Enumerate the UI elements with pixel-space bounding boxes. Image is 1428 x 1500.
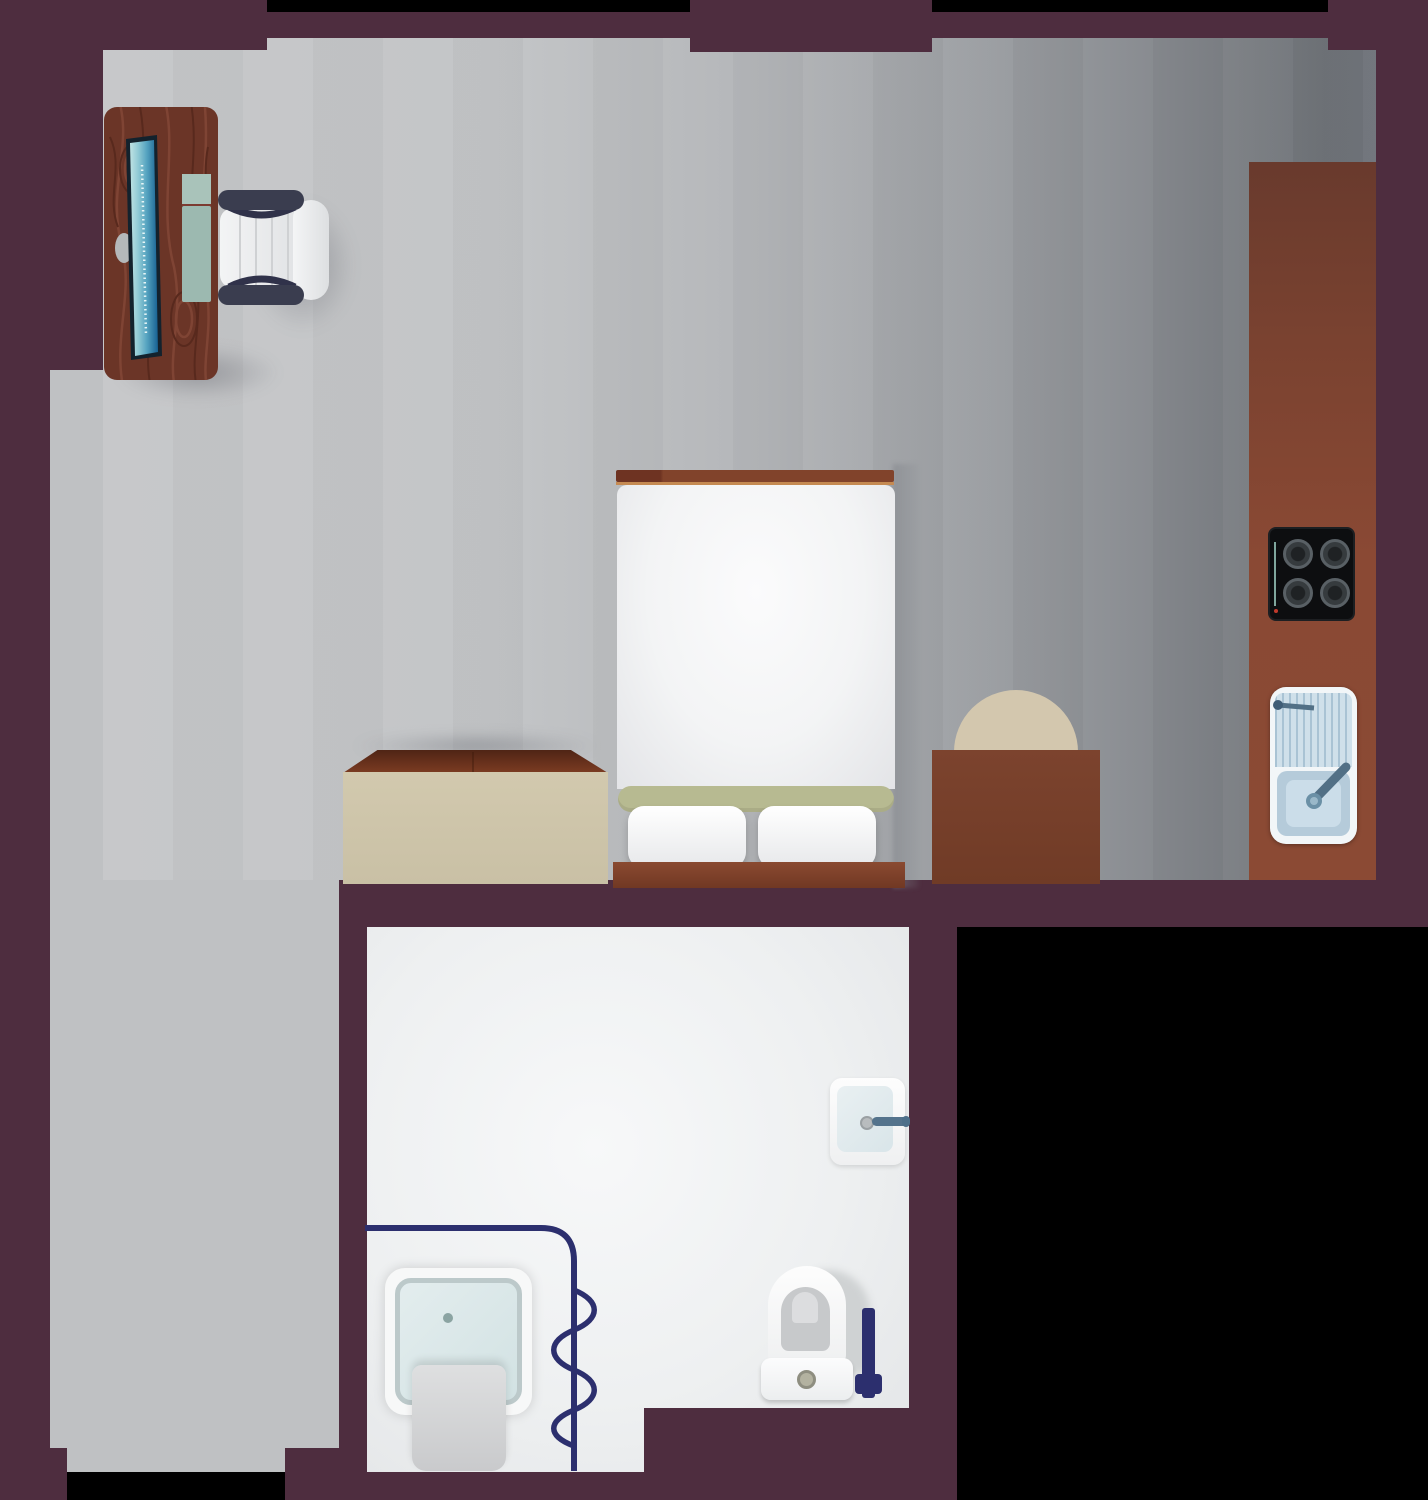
toilet-bowl-center — [792, 1292, 818, 1323]
floor-plan — [0, 0, 1428, 1500]
left-wall-upper — [0, 0, 103, 370]
flush-button-icon — [797, 1370, 816, 1389]
dresser-top — [343, 750, 608, 773]
kitchen-sink — [1270, 687, 1357, 844]
left-floor-extension — [50, 370, 103, 880]
bathroom-left-wall — [339, 880, 367, 1448]
burner-icon — [1283, 578, 1313, 608]
side-table — [932, 750, 1100, 884]
burner-icon — [1283, 539, 1313, 569]
dresser-front — [343, 772, 608, 884]
left-wall-lower — [0, 370, 50, 1448]
dresser-seam — [472, 752, 474, 772]
bed-shadow — [893, 464, 919, 888]
toilet — [768, 1266, 846, 1365]
pillow-right — [758, 806, 876, 868]
bath-mat — [412, 1365, 506, 1471]
pillow-left — [628, 806, 746, 868]
chair-armrest — [218, 285, 304, 305]
burner-icon — [1320, 578, 1350, 608]
top-wall-middle-section — [690, 0, 932, 52]
office-chair — [205, 175, 350, 320]
left-wall-corner — [0, 1448, 67, 1500]
stove-indicator-strip — [1274, 542, 1276, 606]
burner-icon — [1320, 539, 1350, 569]
chair-backrest — [293, 200, 329, 300]
bed-headboard — [613, 862, 905, 888]
faucet-cap — [902, 1116, 910, 1127]
bathroom-sink — [830, 1078, 905, 1165]
bed-footboard — [616, 470, 894, 482]
monitor — [114, 130, 170, 370]
stove-power-dot — [1274, 609, 1278, 613]
stove-top — [1268, 527, 1355, 621]
chair-armrest — [218, 190, 304, 210]
toilet-tank — [761, 1358, 853, 1400]
right-wall — [1376, 10, 1428, 927]
shower-drain-icon — [443, 1313, 453, 1323]
corridor-floor — [50, 880, 339, 1472]
bed-duvet — [617, 485, 895, 789]
toilet-brush-base — [855, 1374, 882, 1394]
bathroom-right-wall — [909, 880, 957, 1500]
kitchen-faucet-icon — [1270, 687, 1357, 844]
